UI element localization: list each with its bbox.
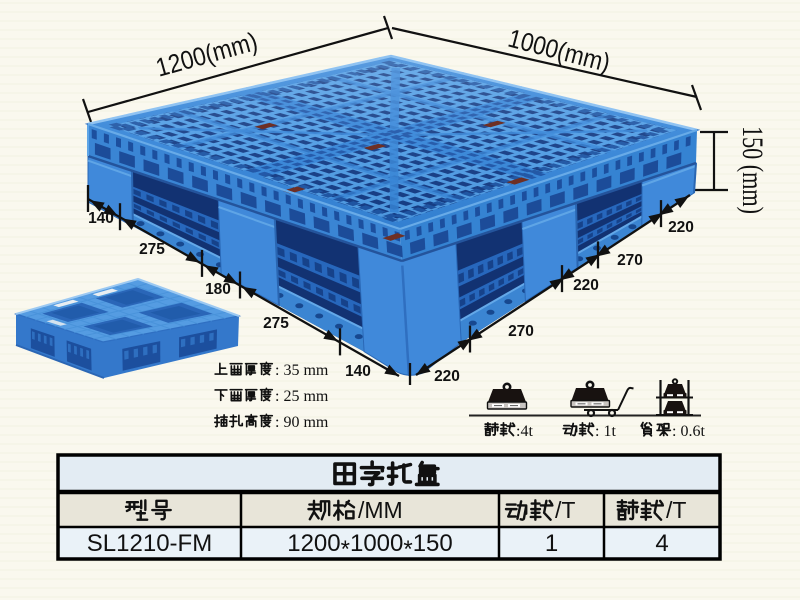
svg-text:: 90 mm: : 90 mm <box>275 414 329 431</box>
svg-text:275: 275 <box>263 315 289 332</box>
svg-text:270: 270 <box>508 323 534 340</box>
svg-text:/T: /T <box>666 497 686 523</box>
svg-text:275: 275 <box>139 241 165 258</box>
svg-text:1: 1 <box>545 530 558 557</box>
svg-text:/T: /T <box>555 497 575 523</box>
svg-text:: 0.6t: : 0.6t <box>672 423 705 440</box>
svg-text:220: 220 <box>434 368 460 385</box>
svg-text:180: 180 <box>205 281 231 298</box>
svg-text:SL1210-FM: SL1210-FM <box>87 530 212 557</box>
svg-text:4: 4 <box>655 530 668 557</box>
svg-text:220: 220 <box>573 277 599 294</box>
svg-text:270: 270 <box>617 252 643 269</box>
svg-text:: 1t: : 1t <box>595 423 616 440</box>
svg-text:: 25 mm: : 25 mm <box>275 388 329 405</box>
svg-text:140: 140 <box>88 210 114 227</box>
svg-text:220: 220 <box>668 219 694 236</box>
svg-text:140: 140 <box>345 363 371 380</box>
svg-text:/MM: /MM <box>358 497 403 523</box>
svg-text::4t: :4t <box>516 423 533 440</box>
svg-text:150 (mm): 150 (mm) <box>736 126 769 214</box>
svg-text:: 35 mm: : 35 mm <box>275 362 329 379</box>
